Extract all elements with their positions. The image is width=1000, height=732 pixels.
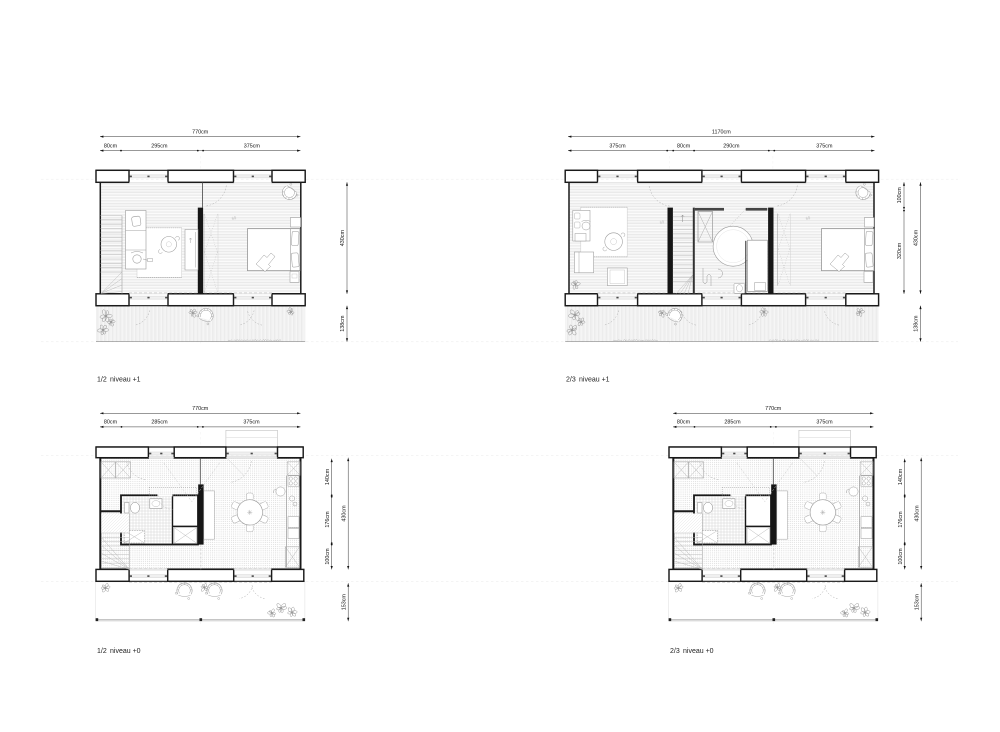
svg-text:2/3: 2/3 [670, 648, 680, 655]
svg-text:niveau +1: niveau +1 [110, 377, 141, 384]
svg-text:1/2: 1/2 [97, 377, 107, 384]
svg-text:295cm: 295cm [151, 143, 168, 149]
svg-text:niveau +0: niveau +0 [683, 648, 714, 655]
svg-text:138cm: 138cm [340, 315, 346, 332]
svg-text:770cm: 770cm [765, 406, 782, 412]
svg-text:375cm: 375cm [816, 143, 833, 149]
svg-text:80cm: 80cm [104, 143, 118, 149]
svg-text:100cm: 100cm [898, 548, 904, 565]
svg-text:80cm: 80cm [677, 420, 691, 426]
svg-text:niveau +0: niveau +0 [110, 648, 141, 655]
svg-text:140cm: 140cm [325, 468, 331, 485]
svg-text:430cm: 430cm [341, 505, 347, 522]
svg-text:285cm: 285cm [151, 420, 168, 426]
svg-text:176cm: 176cm [325, 511, 331, 528]
svg-text:140cm: 140cm [898, 468, 904, 485]
svg-text:1/2: 1/2 [97, 648, 107, 655]
svg-text:153cm: 153cm [914, 594, 920, 611]
svg-text:138cm: 138cm [914, 315, 920, 332]
svg-text:290cm: 290cm [723, 143, 740, 149]
svg-text:2/3: 2/3 [566, 377, 576, 384]
svg-text:80cm: 80cm [104, 420, 118, 426]
svg-text:niveau +1: niveau +1 [579, 377, 610, 384]
svg-text:375cm: 375cm [816, 420, 833, 426]
svg-text:153cm: 153cm [341, 594, 347, 611]
svg-text:770cm: 770cm [192, 129, 209, 135]
svg-text:285cm: 285cm [724, 420, 741, 426]
svg-text:375cm: 375cm [244, 143, 261, 149]
svg-text:430cm: 430cm [340, 230, 346, 247]
svg-text:176cm: 176cm [898, 511, 904, 528]
svg-text:375cm: 375cm [609, 143, 626, 149]
svg-text:80cm: 80cm [677, 143, 691, 149]
svg-text:100cm: 100cm [897, 187, 903, 204]
svg-text:770cm: 770cm [192, 406, 209, 412]
svg-text:430cm: 430cm [914, 505, 920, 522]
svg-text:430cm: 430cm [914, 229, 920, 246]
svg-text:100cm: 100cm [325, 548, 331, 565]
svg-text:375cm: 375cm [243, 420, 260, 426]
svg-text:1170cm: 1170cm [712, 129, 731, 135]
svg-text:320cm: 320cm [897, 242, 903, 259]
